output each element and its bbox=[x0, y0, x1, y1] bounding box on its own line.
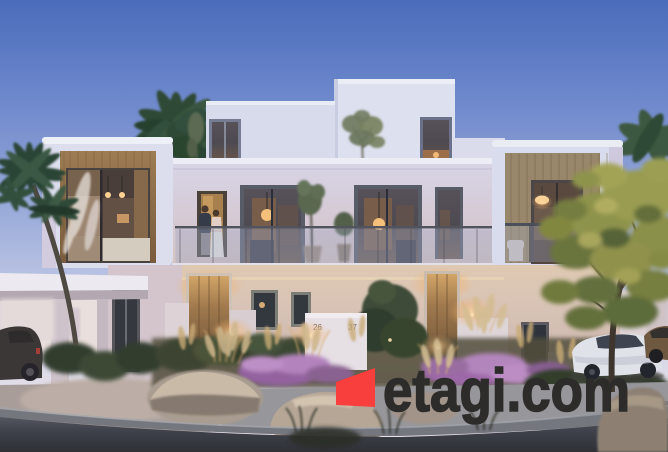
svg-text:etagi.com: etagi.com bbox=[383, 357, 630, 424]
